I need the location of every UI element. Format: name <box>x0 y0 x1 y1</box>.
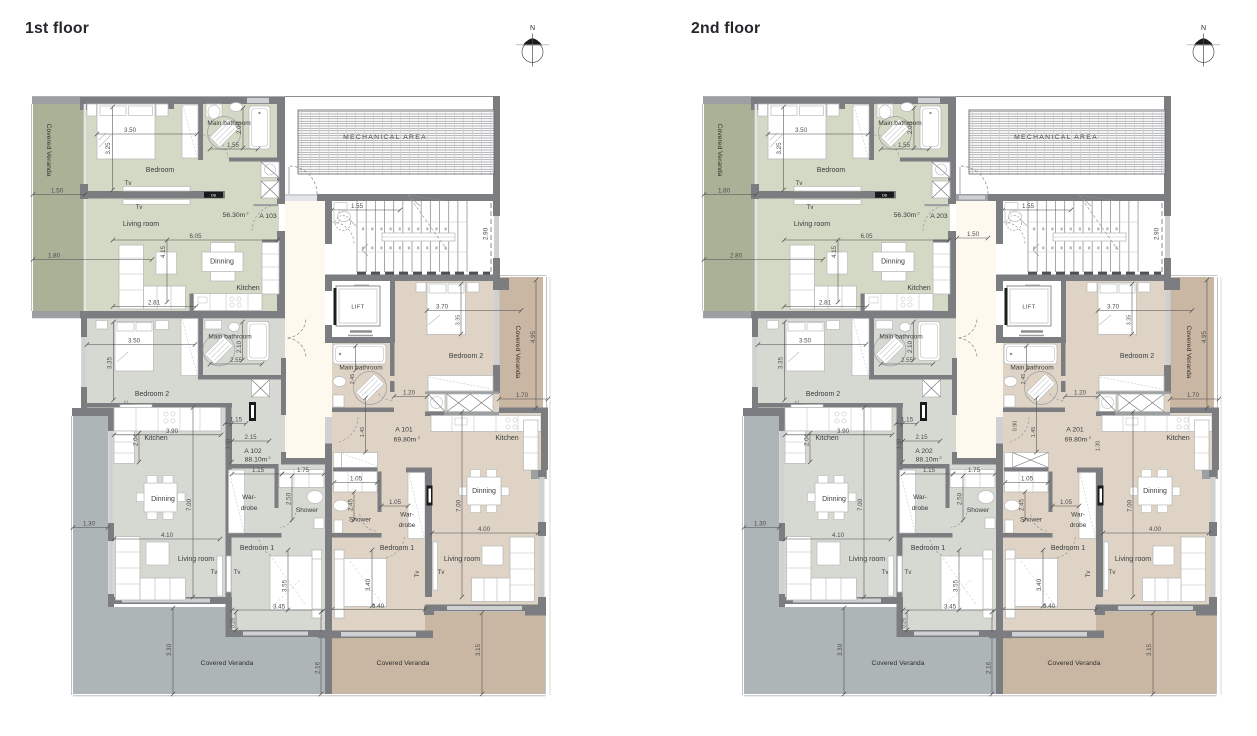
svg-text:Dinning: Dinning <box>151 496 175 503</box>
svg-text:Bedroom 2: Bedroom 2 <box>806 391 840 398</box>
svg-text:3.30: 3.30 <box>166 643 173 656</box>
svg-text:Covered Veranda: Covered Veranda <box>1185 326 1192 379</box>
svg-text:1.05: 1.05 <box>1021 476 1034 483</box>
svg-text:LIFT: LIFT <box>351 305 364 311</box>
svg-text:drobe: drobe <box>399 522 416 529</box>
svg-text:1.50: 1.50 <box>897 439 903 450</box>
svg-text:1.50: 1.50 <box>967 231 980 238</box>
svg-text:2.45: 2.45 <box>348 498 355 511</box>
svg-text:Main bathroom: Main bathroom <box>208 334 251 341</box>
svg-text:1.30: 1.30 <box>83 521 96 528</box>
svg-text:4.95: 4.95 <box>530 330 537 343</box>
svg-text:Shower: Shower <box>967 507 990 514</box>
svg-text:Dinning: Dinning <box>210 259 234 266</box>
svg-text:3.70: 3.70 <box>1107 304 1120 311</box>
svg-text:Living room: Living room <box>123 221 159 228</box>
svg-text:3.40: 3.40 <box>365 578 372 591</box>
svg-text:2.55: 2.55 <box>230 357 243 364</box>
svg-text:Main bathroom: Main bathroom <box>339 365 382 372</box>
svg-text:7.00: 7.00 <box>857 498 864 511</box>
svg-text:A 203: A 203 <box>930 213 948 220</box>
svg-text:4.95: 4.95 <box>1201 330 1208 343</box>
svg-text:3.90: 3.90 <box>837 428 850 435</box>
svg-text:1st floor: 1st floor <box>25 20 89 37</box>
svg-text:56.30m: 56.30m <box>223 212 246 219</box>
svg-text:3.50: 3.50 <box>124 127 137 134</box>
svg-text:Living room: Living room <box>794 221 830 228</box>
svg-text:DB: DB <box>882 194 887 198</box>
svg-text:Covered Veranda: Covered Veranda <box>377 660 430 667</box>
svg-text:2.04: 2.04 <box>133 433 140 446</box>
svg-text:1.05: 1.05 <box>350 476 363 483</box>
svg-text:3.30: 3.30 <box>837 643 844 656</box>
svg-text:Tv: Tv <box>438 570 445 576</box>
svg-text:1.80: 1.80 <box>48 253 61 260</box>
svg-text:7.00: 7.00 <box>1127 499 1134 512</box>
svg-text:2.80: 2.80 <box>730 253 743 260</box>
svg-text:Tv: Tv <box>796 181 803 187</box>
svg-text:2.50: 2.50 <box>286 492 293 505</box>
svg-text:2.81: 2.81 <box>819 300 832 307</box>
svg-text:69.80m: 69.80m <box>1065 437 1088 444</box>
svg-text:2.15: 2.15 <box>244 434 257 441</box>
svg-text:Dinning: Dinning <box>1143 488 1167 495</box>
svg-text:Kitchen: Kitchen <box>144 435 167 442</box>
svg-text:2.90: 2.90 <box>1154 227 1161 240</box>
svg-text:88.10m: 88.10m <box>916 457 939 464</box>
svg-text:3.90: 3.90 <box>166 428 179 435</box>
svg-text:7.00: 7.00 <box>186 498 193 511</box>
svg-text:A1: A1 <box>123 400 129 405</box>
svg-text:1.20: 1.20 <box>1074 390 1087 397</box>
svg-text:Dinning: Dinning <box>822 496 846 503</box>
svg-text:1.80: 1.80 <box>718 188 731 195</box>
svg-text:3.50: 3.50 <box>795 127 808 134</box>
svg-text:N: N <box>530 25 535 32</box>
svg-text:1.15: 1.15 <box>252 467 265 474</box>
svg-text:1.75: 1.75 <box>297 467 310 474</box>
svg-text:1.15: 1.15 <box>230 417 243 424</box>
svg-text:MECHANICAL AREA: MECHANICAL AREA <box>343 134 427 141</box>
svg-text:1.45: 1.45 <box>1031 427 1037 438</box>
svg-text:Bedroom 1: Bedroom 1 <box>380 545 414 552</box>
svg-text:56.30m: 56.30m <box>894 212 917 219</box>
svg-text:Bedroom 1: Bedroom 1 <box>1051 545 1085 552</box>
svg-text:Kitchen: Kitchen <box>1166 435 1189 442</box>
svg-text:2.00: 2.00 <box>907 121 914 134</box>
svg-text:1.15: 1.15 <box>923 467 936 474</box>
svg-text:Main bathroom: Main bathroom <box>207 120 250 127</box>
svg-text:Living room: Living room <box>849 556 885 563</box>
svg-text:2.45: 2.45 <box>1021 374 1027 385</box>
svg-text:1.15: 1.15 <box>901 417 914 424</box>
svg-text:Bedroom 1: Bedroom 1 <box>240 545 274 552</box>
svg-text:3.35: 3.35 <box>456 315 462 326</box>
svg-text:LIFT: LIFT <box>1022 305 1035 311</box>
svg-text:MECHANICAL AREA: MECHANICAL AREA <box>1014 134 1098 141</box>
svg-text:6.05: 6.05 <box>189 233 202 240</box>
svg-text:2.10: 2.10 <box>907 340 914 353</box>
svg-text:A 201: A 201 <box>1066 427 1084 434</box>
svg-text:1.05: 1.05 <box>389 499 402 506</box>
svg-text:2.50: 2.50 <box>957 492 964 505</box>
svg-text:2.16: 2.16 <box>986 661 993 674</box>
svg-text:Bedroom 2: Bedroom 2 <box>1120 353 1154 360</box>
svg-text:drobe: drobe <box>1070 522 1087 529</box>
svg-text:2nd floor: 2nd floor <box>691 20 760 37</box>
svg-text:Covered Veranda: Covered Veranda <box>201 660 254 667</box>
svg-text:3.15: 3.15 <box>1146 643 1153 656</box>
svg-text:2.90: 2.90 <box>483 227 490 240</box>
svg-text:2.04: 2.04 <box>804 433 811 446</box>
svg-text:drobe: drobe <box>241 505 258 512</box>
svg-text:1.30: 1.30 <box>754 521 767 528</box>
svg-text:3.35: 3.35 <box>107 356 114 369</box>
svg-text:1.55: 1.55 <box>227 142 240 149</box>
svg-text:3.40: 3.40 <box>1036 578 1043 591</box>
svg-text:4.15: 4.15 <box>831 245 838 258</box>
svg-text:0.25: 0.25 <box>231 618 237 628</box>
svg-text:3.45: 3.45 <box>944 604 957 611</box>
svg-text:Tv: Tv <box>1086 571 1092 578</box>
svg-text:A 102: A 102 <box>244 448 262 455</box>
svg-text:1.70: 1.70 <box>1187 392 1200 399</box>
svg-text:Kitchen: Kitchen <box>236 285 259 292</box>
svg-text:2.16: 2.16 <box>315 661 322 674</box>
svg-text:Covered Veranda: Covered Veranda <box>1048 660 1101 667</box>
svg-text:7.00: 7.00 <box>456 499 463 512</box>
svg-text:Tv: Tv <box>807 205 814 211</box>
svg-text:69.80m: 69.80m <box>394 437 417 444</box>
svg-text:A 103: A 103 <box>259 213 277 220</box>
svg-text:Main bathroom: Main bathroom <box>1010 365 1053 372</box>
svg-text:Covered Veranda: Covered Veranda <box>514 326 521 379</box>
svg-text:Tv: Tv <box>415 571 421 578</box>
svg-text:3.45: 3.45 <box>273 604 286 611</box>
svg-text:3.50: 3.50 <box>128 338 141 345</box>
svg-text:3.25: 3.25 <box>776 142 783 155</box>
svg-text:War-: War- <box>242 494 256 501</box>
svg-text:War-: War- <box>913 494 927 501</box>
svg-text:1.55: 1.55 <box>351 203 364 210</box>
svg-text:1.55: 1.55 <box>1022 203 1035 210</box>
svg-text:A 101: A 101 <box>395 427 413 434</box>
svg-text:War-: War- <box>400 512 414 519</box>
svg-text:Tv: Tv <box>1109 570 1116 576</box>
svg-text:A 202: A 202 <box>915 448 933 455</box>
svg-text:Shower: Shower <box>296 507 319 514</box>
svg-text:0.90: 0.90 <box>1013 421 1019 432</box>
svg-text:2.55: 2.55 <box>901 357 914 364</box>
svg-text:88.10m: 88.10m <box>245 457 268 464</box>
svg-text:3.35: 3.35 <box>778 356 785 369</box>
svg-text:Bedroom 1: Bedroom 1 <box>911 545 945 552</box>
svg-text:3.70: 3.70 <box>436 304 449 311</box>
svg-text:0.25: 0.25 <box>902 618 908 628</box>
svg-text:2.15: 2.15 <box>915 434 928 441</box>
svg-text:Tv: Tv <box>211 570 218 576</box>
svg-text:3.25: 3.25 <box>105 142 112 155</box>
svg-text:1.45: 1.45 <box>360 427 366 438</box>
svg-text:Main bathroom: Main bathroom <box>878 120 921 127</box>
svg-text:drobe: drobe <box>912 505 929 512</box>
svg-text:Bedroom: Bedroom <box>146 167 175 174</box>
svg-text:Bedroom: Bedroom <box>817 167 846 174</box>
svg-text:Dinning: Dinning <box>472 488 496 495</box>
svg-text:2.45: 2.45 <box>350 374 356 385</box>
svg-text:2.45: 2.45 <box>1019 498 1026 511</box>
svg-text:2.81: 2.81 <box>148 300 161 307</box>
svg-text:1.20: 1.20 <box>403 390 416 397</box>
svg-text:Tv: Tv <box>234 570 241 576</box>
svg-text:3.55: 3.55 <box>282 579 289 592</box>
svg-text:3.50: 3.50 <box>799 338 812 345</box>
svg-text:Tv: Tv <box>882 570 889 576</box>
svg-text:Main bathroom: Main bathroom <box>879 334 922 341</box>
svg-text:Kitchen: Kitchen <box>815 435 838 442</box>
svg-text:N: N <box>1201 25 1206 32</box>
svg-text:Dinning: Dinning <box>881 259 905 266</box>
svg-text:4.10: 4.10 <box>832 532 845 539</box>
svg-text:4.00: 4.00 <box>1149 526 1162 533</box>
svg-text:1.05: 1.05 <box>1060 499 1073 506</box>
svg-text:1.75: 1.75 <box>968 467 981 474</box>
svg-text:Covered Veranda: Covered Veranda <box>872 660 925 667</box>
svg-text:2.00: 2.00 <box>236 121 243 134</box>
svg-text:Bedroom 2: Bedroom 2 <box>449 353 483 360</box>
svg-text:Bedroom 2: Bedroom 2 <box>135 391 169 398</box>
svg-text:A1: A1 <box>794 400 800 405</box>
svg-text:Tv: Tv <box>905 570 912 576</box>
svg-text:3.40: 3.40 <box>372 603 385 610</box>
svg-text:DB: DB <box>211 194 216 198</box>
svg-text:Living room: Living room <box>178 556 214 563</box>
svg-text:3.15: 3.15 <box>475 643 482 656</box>
svg-text:Tv: Tv <box>136 205 143 211</box>
svg-text:1.30: 1.30 <box>1096 441 1102 452</box>
svg-text:Covered Veranda: Covered Veranda <box>716 124 723 177</box>
svg-text:Shower: Shower <box>1020 517 1043 524</box>
svg-text:4.00: 4.00 <box>478 526 491 533</box>
svg-text:Kitchen: Kitchen <box>495 435 518 442</box>
svg-text:6.05: 6.05 <box>860 233 873 240</box>
svg-text:2.10: 2.10 <box>236 340 243 353</box>
svg-text:Shower: Shower <box>349 517 372 524</box>
svg-text:War-: War- <box>1071 512 1085 519</box>
svg-text:Covered Veranda: Covered Veranda <box>45 124 52 177</box>
svg-text:1.50: 1.50 <box>226 439 232 450</box>
svg-text:1.50: 1.50 <box>51 188 64 195</box>
svg-text:1.55: 1.55 <box>898 142 911 149</box>
svg-text:3.35: 3.35 <box>1127 315 1133 326</box>
svg-text:4.10: 4.10 <box>161 532 174 539</box>
svg-text:3.40: 3.40 <box>1043 603 1056 610</box>
svg-text:4.15: 4.15 <box>160 245 167 258</box>
svg-text:1.70: 1.70 <box>516 392 529 399</box>
svg-text:3.55: 3.55 <box>953 579 960 592</box>
svg-text:Tv: Tv <box>125 181 132 187</box>
svg-text:Kitchen: Kitchen <box>907 285 930 292</box>
